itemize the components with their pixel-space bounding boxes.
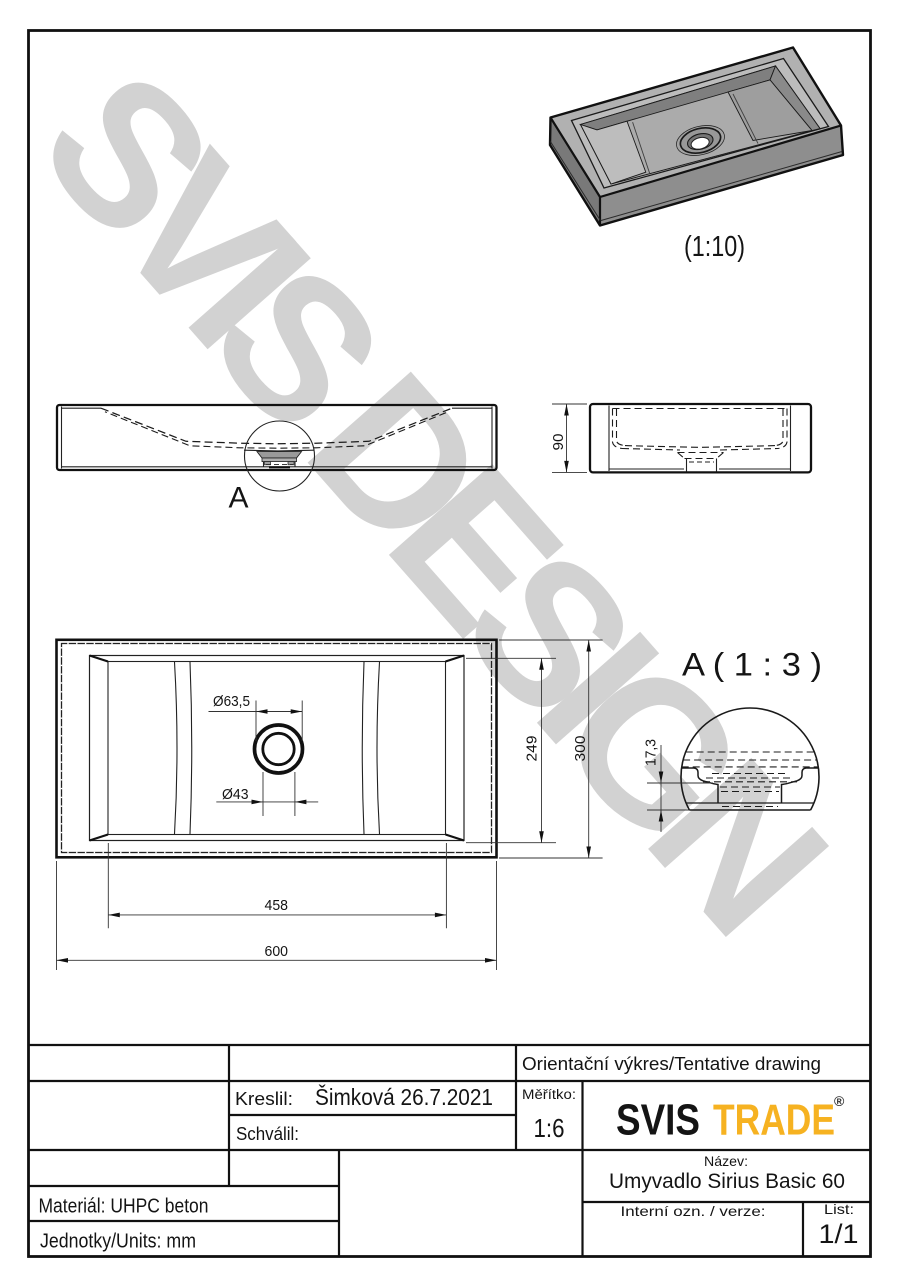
svg-text:TRADE: TRADE [713,1096,835,1145]
svg-text:List:: List: [824,1201,854,1217]
svg-text:Ø63,5: Ø63,5 [213,694,250,710]
svg-text:Materiál: UHPC beton: Materiál: UHPC beton [39,1196,209,1218]
svg-text:Schválil:: Schválil: [236,1124,299,1144]
svg-text:®: ® [834,1093,845,1109]
svg-text:A ( 1 : 3 ): A ( 1 : 3 ) [682,647,822,683]
svg-text:A: A [229,482,249,515]
svg-text:249: 249 [525,736,541,762]
svg-text:17,3: 17,3 [644,739,660,766]
svg-text:Jednotky/Units: mm: Jednotky/Units: mm [40,1231,196,1253]
svg-text:Orientační výkres/Tentative dr: Orientační výkres/Tentative drawing [522,1054,821,1074]
svg-text:Ø43: Ø43 [222,787,249,803]
svg-text:SVIS: SVIS [616,1096,700,1145]
svg-text:1/1: 1/1 [819,1219,859,1249]
svg-text:Měřítko:: Měřítko: [522,1087,576,1102]
svg-text:300: 300 [573,736,589,762]
svg-text:(1:10): (1:10) [684,231,745,263]
svg-text:90: 90 [551,434,567,451]
svg-text:600: 600 [265,944,289,960]
svg-text:Šimková 26.7.2021: Šimková 26.7.2021 [315,1083,493,1110]
svg-text:Interní ozn. / verze:: Interní ozn. / verze: [621,1203,766,1219]
svg-text:Název:: Název: [704,1153,748,1169]
svg-text:1:6: 1:6 [534,1113,565,1143]
svg-text:Kreslil:: Kreslil: [235,1089,293,1109]
svg-text:Umyvadlo Sirius Basic 60: Umyvadlo Sirius Basic 60 [609,1170,845,1193]
svg-text:458: 458 [265,898,289,914]
